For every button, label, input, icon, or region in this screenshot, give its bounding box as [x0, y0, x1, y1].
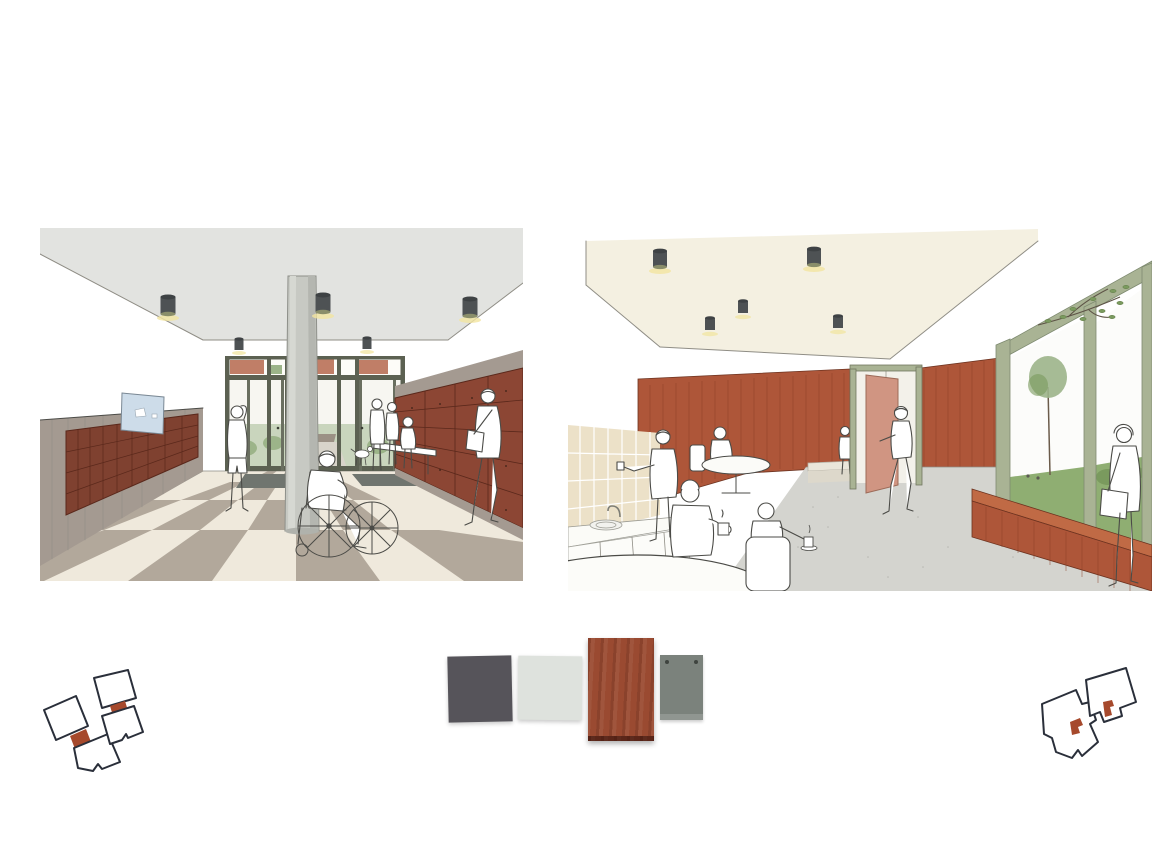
- presentation-board: [0, 0, 1170, 850]
- keyplan-footprint: [94, 670, 143, 744]
- entrance-lobby-scene: [40, 228, 523, 581]
- door-handle: [277, 427, 280, 430]
- notice-board: [121, 393, 164, 434]
- window-jamb: [1142, 263, 1152, 591]
- keyplan-footprint: [1086, 668, 1136, 722]
- communal-kitchen-scene: [568, 227, 1152, 591]
- rendering-entrance-lobby: [40, 228, 523, 581]
- swatch-pale-grey-tile: [518, 656, 583, 721]
- keyplan-right: [1034, 664, 1142, 770]
- window-mullion: [1084, 301, 1096, 559]
- keyplan-left: [30, 668, 148, 774]
- swatch-mahogany-veneer-panel: [588, 638, 654, 741]
- swatch-anthracite-tile: [447, 655, 512, 722]
- rendering-communal-kitchen: [568, 227, 1152, 591]
- door-handle: [361, 427, 364, 430]
- swatch-grey-green-panel: [660, 655, 703, 720]
- sink: [590, 520, 622, 530]
